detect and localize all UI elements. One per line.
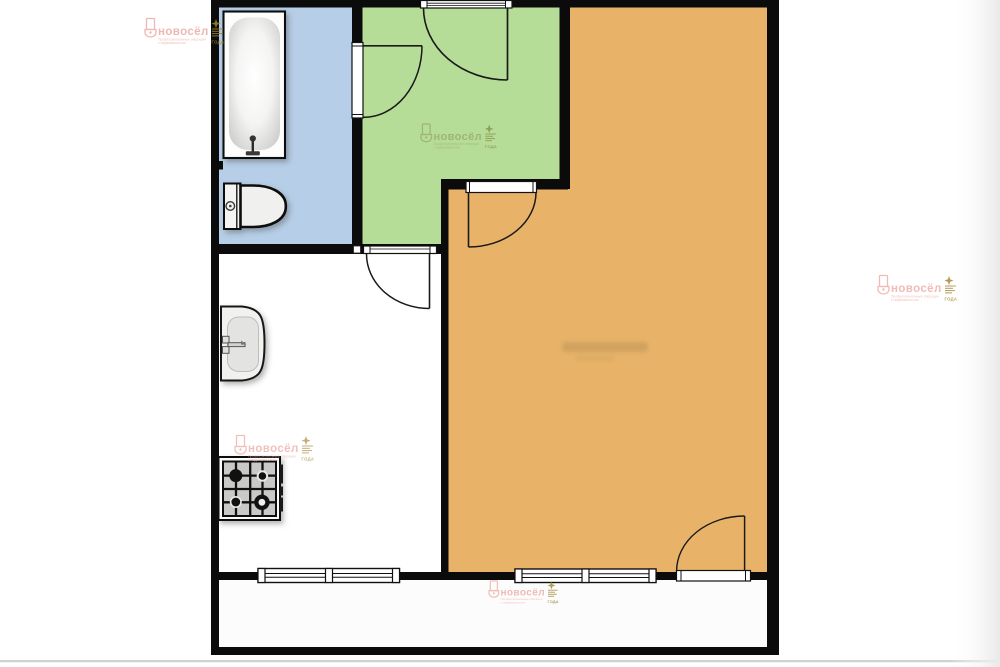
svg-text:с недвижимостью: с недвижимостью: [248, 458, 276, 462]
svg-text:ГОДА: ГОДА: [302, 457, 315, 462]
svg-text:с недвижимостью: с недвижимостью: [158, 41, 186, 45]
svg-text:ГОДА: ГОДА: [485, 144, 497, 149]
svg-text:с недвижимостью: с недвижимостью: [500, 600, 525, 604]
svg-text:с недвижимостью: с недвижимостью: [891, 298, 919, 302]
svg-text:с недвижимостью: с недвижимостью: [433, 145, 460, 149]
svg-text:ГОДА: ГОДА: [548, 600, 559, 604]
svg-text:ГОДА: ГОДА: [212, 40, 225, 45]
